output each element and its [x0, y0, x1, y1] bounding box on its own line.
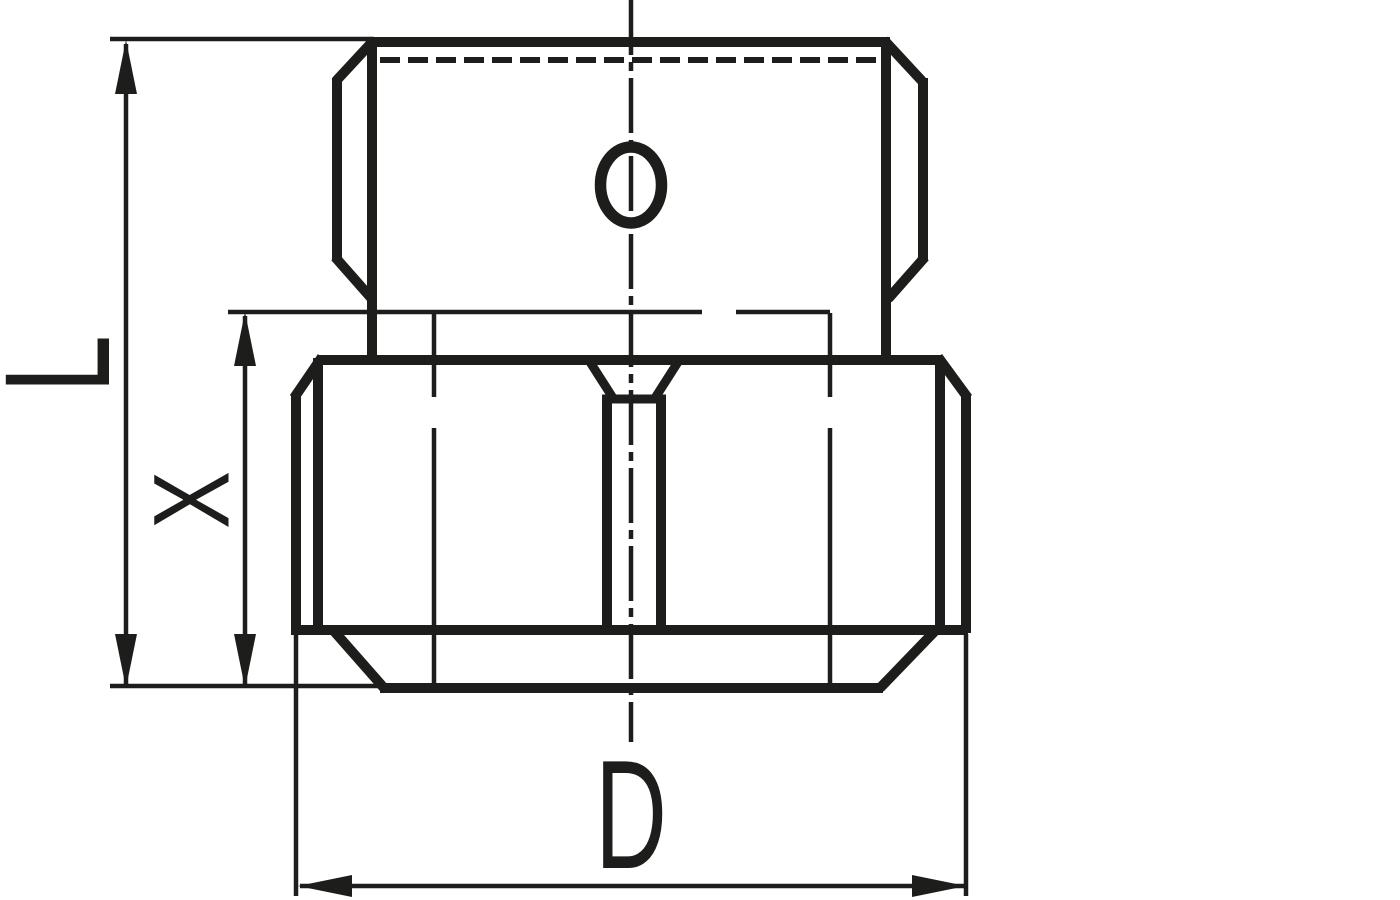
- label-L: L: [0, 335, 141, 393]
- slot-entry-chamfer-left: [590, 362, 613, 398]
- upper-lower-chamfer-right: [888, 257, 925, 299]
- slot-entry-chamfer-right: [655, 362, 678, 398]
- slot-section: [590, 362, 678, 630]
- arrow-up-icon: [115, 40, 137, 94]
- arrow-left-icon: [298, 875, 352, 897]
- bottom-chamfer-right: [880, 630, 936, 688]
- arrow-down-icon: [234, 634, 256, 688]
- technical-drawing-canvas: L X D: [0, 0, 1400, 900]
- label-X: X: [131, 471, 252, 529]
- arrow-up-icon: [234, 312, 256, 366]
- arrow-down-icon: [115, 634, 137, 688]
- arrow-right-icon: [912, 875, 966, 897]
- upper-lower-chamfer-left: [335, 257, 372, 299]
- label-D: D: [595, 728, 667, 900]
- bottom-chamfer-left: [333, 630, 384, 688]
- drawing-svg: L X D: [0, 0, 1400, 900]
